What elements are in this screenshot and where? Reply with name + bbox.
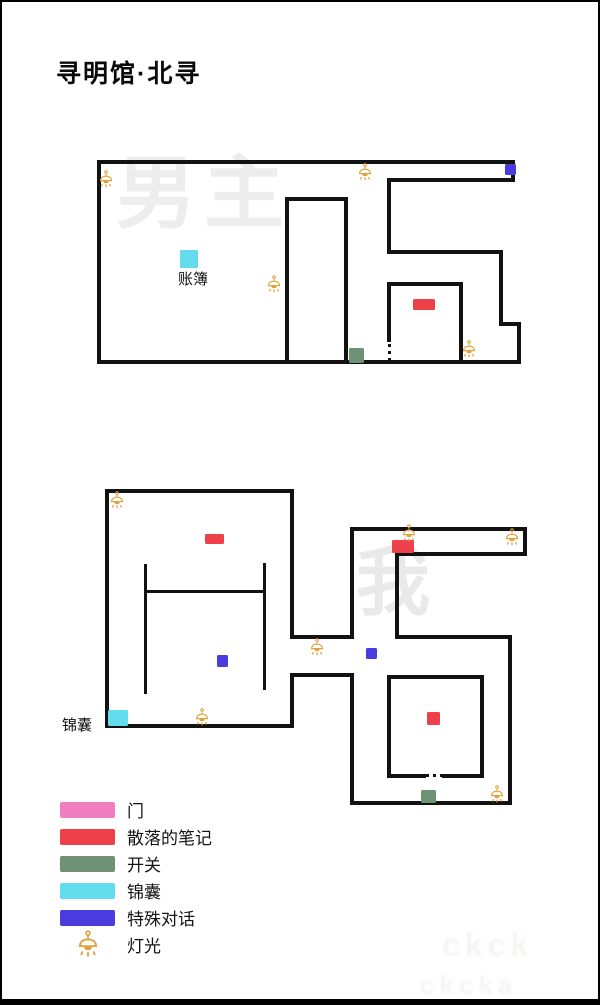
wall xyxy=(97,160,101,364)
wall xyxy=(395,552,399,639)
wall xyxy=(350,673,354,805)
wall xyxy=(290,673,294,728)
lamp-icon xyxy=(489,785,505,804)
marker-dialog xyxy=(366,648,377,659)
wall xyxy=(387,250,503,254)
wall xyxy=(290,489,294,639)
marker-bag xyxy=(108,710,128,726)
wall xyxy=(517,322,521,364)
wall xyxy=(480,675,484,778)
legend-row-lamp: 灯光 xyxy=(60,931,212,958)
faint-watermark-line: ckck xyxy=(442,927,533,964)
wall xyxy=(387,178,391,254)
wall xyxy=(97,160,515,164)
wall xyxy=(387,675,484,679)
marker-note xyxy=(427,712,440,725)
legend-row-door: 门 xyxy=(60,796,212,823)
legend-row-bag: 锦囊 xyxy=(60,877,212,904)
doorway-dotted-wall xyxy=(388,344,391,360)
wall xyxy=(350,527,527,531)
legend-swatch-door xyxy=(60,802,115,818)
legend-label: 门 xyxy=(127,797,144,822)
marker-switch xyxy=(421,790,436,803)
wall xyxy=(144,564,147,694)
legend-swatch-bag xyxy=(60,883,115,899)
wall xyxy=(499,250,503,326)
lamp-icon xyxy=(357,163,373,182)
legend-row-dialog: 特殊对话 xyxy=(60,904,212,931)
legend-label: 灯光 xyxy=(127,932,161,957)
legend-label: 特殊对话 xyxy=(127,905,195,930)
wall xyxy=(105,489,109,728)
lamp-icon xyxy=(194,708,210,727)
wall xyxy=(290,673,354,677)
marker-bag xyxy=(180,250,198,268)
lamp-icon xyxy=(76,930,100,959)
lamp-icon xyxy=(401,524,417,543)
lamp-icon xyxy=(109,491,125,510)
legend-label: 开关 xyxy=(127,851,161,876)
marker-note xyxy=(413,299,435,310)
wall xyxy=(387,282,463,286)
wall xyxy=(508,635,512,805)
wall xyxy=(144,590,266,593)
map-watermark: 男主 xyxy=(116,154,292,234)
faint-watermark-line: ckcka xyxy=(420,970,517,1001)
wall xyxy=(350,527,354,639)
marker-switch xyxy=(349,348,364,363)
legend-label: 散落的笔记 xyxy=(127,824,212,849)
doorway-dotted-wall xyxy=(426,774,442,777)
legend-row-note: 散落的笔记 xyxy=(60,823,212,850)
legend: 门散落的笔记开关锦囊特殊对话 灯光 xyxy=(60,796,212,958)
marker-dialog xyxy=(217,655,228,667)
wall xyxy=(387,286,391,342)
wall xyxy=(395,552,527,556)
ledger-label: 账簿 xyxy=(178,268,208,289)
legend-swatch-dialog xyxy=(60,910,115,926)
bottom-border-bar xyxy=(2,999,598,1005)
pouch-label: 锦囊 xyxy=(62,714,92,735)
wall xyxy=(387,675,391,778)
wall xyxy=(285,197,289,364)
lamp-icon xyxy=(461,340,477,359)
legend-lamp-slot xyxy=(60,930,115,959)
page-title: 寻明馆·北寻 xyxy=(56,54,201,90)
wall xyxy=(395,635,512,639)
wall xyxy=(105,489,294,493)
wall xyxy=(344,197,348,364)
lamp-icon xyxy=(266,275,282,294)
wall xyxy=(263,563,266,690)
marker-note xyxy=(205,534,224,544)
wall xyxy=(285,197,348,201)
lamp-icon xyxy=(504,528,520,547)
wall xyxy=(97,360,521,364)
wall xyxy=(442,774,484,778)
guide-page: 寻明馆·北寻 男主 账簿我 xyxy=(0,0,600,1005)
wall xyxy=(387,774,426,778)
legend-swatch-note xyxy=(60,829,115,845)
legend-label: 锦囊 xyxy=(127,878,161,903)
legend-swatch-switch xyxy=(60,856,115,872)
wall xyxy=(387,178,515,182)
lamp-icon xyxy=(309,638,325,657)
lamp-icon xyxy=(98,170,114,189)
legend-row-switch: 开关 xyxy=(60,850,212,877)
marker-dialog xyxy=(505,164,516,175)
